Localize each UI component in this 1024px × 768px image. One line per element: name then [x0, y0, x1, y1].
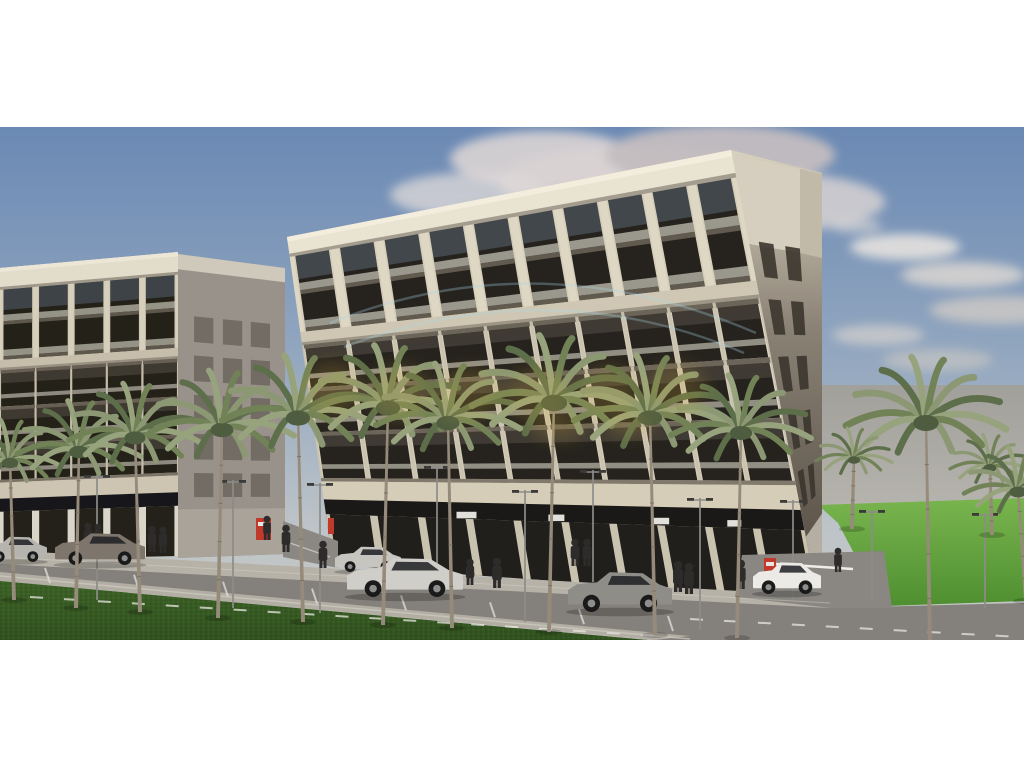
- person-leg: [835, 565, 838, 572]
- pilaster: [104, 281, 109, 353]
- person-head: [319, 541, 327, 549]
- car-hub: [588, 600, 596, 608]
- side-window: [194, 473, 213, 497]
- letterbox-top: [0, 0, 1024, 127]
- lamp-head: [531, 490, 538, 493]
- person-leg: [588, 558, 591, 566]
- balcony-railing: [463, 463, 506, 468]
- person-body: [319, 548, 328, 561]
- person-head: [95, 524, 102, 531]
- balcony-railing: [700, 462, 743, 468]
- person-body: [571, 546, 580, 559]
- lamp-head: [878, 510, 885, 513]
- cloud: [830, 219, 882, 233]
- person-leg: [583, 558, 586, 566]
- person-leg: [149, 545, 152, 552]
- side-window: [251, 322, 270, 348]
- car-shadow: [345, 593, 466, 601]
- mullion: [0, 370, 1, 407]
- balcony-railing: [369, 464, 411, 469]
- watermark-text-blur: [368, 365, 432, 421]
- architectural-rendering-photo: [0, 127, 1024, 640]
- window-reflection: [697, 179, 736, 216]
- cloud: [901, 262, 1024, 288]
- balcony-railing: [322, 464, 364, 469]
- car-hub: [802, 584, 808, 590]
- red-banner: [328, 518, 334, 534]
- palm-crown-core: [913, 415, 939, 431]
- window-reflection: [146, 275, 175, 299]
- pilaster: [69, 284, 74, 356]
- person-leg: [264, 533, 267, 540]
- window-reflection: [75, 281, 104, 304]
- person-head: [466, 559, 473, 566]
- storefront-sign: [456, 512, 476, 519]
- pilaster: [140, 278, 145, 351]
- car-hub: [369, 585, 377, 593]
- lamp-head: [706, 498, 713, 501]
- lamp-head: [103, 475, 110, 478]
- window-reflection: [110, 278, 139, 301]
- mullion: [71, 365, 72, 402]
- person-head: [282, 525, 290, 533]
- palm-crown-core: [730, 426, 752, 440]
- palm-crown-core: [286, 410, 310, 425]
- person-leg: [153, 545, 156, 552]
- lamp-head: [424, 466, 431, 469]
- palm-crown-core: [124, 431, 145, 444]
- person-body: [834, 554, 842, 566]
- pilaster: [176, 275, 179, 348]
- mullion: [0, 407, 1, 444]
- lamp-head: [326, 483, 333, 486]
- person-leg: [287, 544, 290, 552]
- car-hub: [348, 564, 353, 569]
- person-leg: [160, 546, 163, 553]
- person-leg: [324, 560, 327, 568]
- mullion: [177, 358, 178, 396]
- person-body: [282, 532, 291, 545]
- lamp-head: [687, 498, 694, 501]
- side-window: [251, 474, 270, 497]
- lamp-head: [799, 500, 806, 503]
- person-leg: [685, 585, 688, 594]
- cloud: [832, 325, 924, 345]
- lamp-head: [84, 475, 91, 478]
- window-reflection: [39, 284, 68, 307]
- window-reflection: [563, 202, 602, 236]
- palm-crown-core: [2, 458, 19, 468]
- person-leg: [467, 578, 470, 585]
- person-leg: [690, 585, 693, 594]
- rendering-canvas: [0, 127, 1024, 640]
- barrier-panel: [766, 562, 774, 566]
- person-leg: [282, 544, 285, 552]
- window-reflection: [608, 194, 647, 229]
- person-body: [148, 533, 156, 545]
- lamp-head: [580, 470, 587, 473]
- letterbox-bottom: [0, 640, 1024, 768]
- window-reflection: [4, 287, 33, 310]
- watermark-text-blur: [434, 367, 502, 423]
- car-hub: [433, 585, 441, 593]
- car-hub: [645, 600, 653, 608]
- person-leg: [679, 583, 682, 592]
- person-head: [493, 558, 501, 566]
- car-shadow: [566, 608, 674, 617]
- car-hub: [765, 584, 771, 590]
- person-head: [159, 527, 166, 534]
- person-body: [673, 569, 683, 584]
- person-leg: [838, 565, 841, 572]
- person-head: [148, 526, 155, 533]
- lamp-head: [780, 500, 787, 503]
- person-head: [84, 523, 91, 530]
- person-leg: [576, 558, 579, 566]
- screenshot-root: [0, 0, 1024, 768]
- mullion: [35, 368, 36, 405]
- watermark-text-blur: [646, 363, 706, 415]
- side-window: [194, 316, 213, 343]
- balcony-railing: [747, 462, 790, 468]
- person-leg: [164, 546, 167, 553]
- lamp-head: [307, 483, 314, 486]
- person-body: [159, 534, 167, 546]
- person-leg: [742, 581, 745, 589]
- lamp-head: [972, 513, 979, 516]
- person-leg: [498, 580, 501, 588]
- person-leg: [674, 583, 677, 592]
- person-leg: [267, 533, 270, 540]
- window-top-shadow: [1, 408, 34, 420]
- person-head: [571, 539, 579, 547]
- person-leg: [571, 558, 574, 566]
- pilaster: [0, 290, 3, 360]
- person-body: [492, 566, 502, 580]
- person-leg: [493, 580, 496, 588]
- balcony-railing: [511, 463, 554, 469]
- side-window: [223, 319, 242, 346]
- balcony-railing: [605, 463, 648, 469]
- lamp-head: [239, 480, 246, 483]
- person-head: [583, 539, 591, 547]
- watermark-text-blur: [576, 365, 640, 421]
- person-body: [684, 571, 694, 586]
- car-hub: [30, 554, 35, 559]
- pilaster: [33, 287, 38, 358]
- person-leg: [319, 560, 322, 568]
- lamp-head: [859, 510, 866, 513]
- car-shadow: [53, 562, 146, 569]
- person-leg: [471, 578, 474, 585]
- palm-crown-core: [210, 423, 233, 437]
- window-reflection: [653, 186, 692, 222]
- cloud: [850, 234, 960, 260]
- lamp-head: [599, 470, 606, 473]
- lamp-head: [512, 490, 519, 493]
- person-head: [685, 563, 694, 572]
- watermark-text-blur: [534, 413, 586, 441]
- person-body: [583, 546, 592, 559]
- storefront-pier: [174, 506, 178, 556]
- balcony-railing: [652, 462, 695, 468]
- balcony-railing: [558, 463, 601, 469]
- person-head: [264, 516, 271, 523]
- person-body: [466, 566, 474, 578]
- person-head: [835, 548, 842, 555]
- person-head: [674, 561, 683, 570]
- watermark-text-blur: [302, 361, 362, 417]
- watermark-text-blur: [606, 413, 654, 437]
- roof-block: [800, 169, 822, 258]
- car-hub: [122, 555, 128, 561]
- palm-crown-core: [848, 456, 860, 464]
- car-shadow: [752, 591, 822, 598]
- person-body: [263, 522, 271, 534]
- window-top-shadow: [729, 363, 773, 380]
- window-reflection: [519, 210, 557, 243]
